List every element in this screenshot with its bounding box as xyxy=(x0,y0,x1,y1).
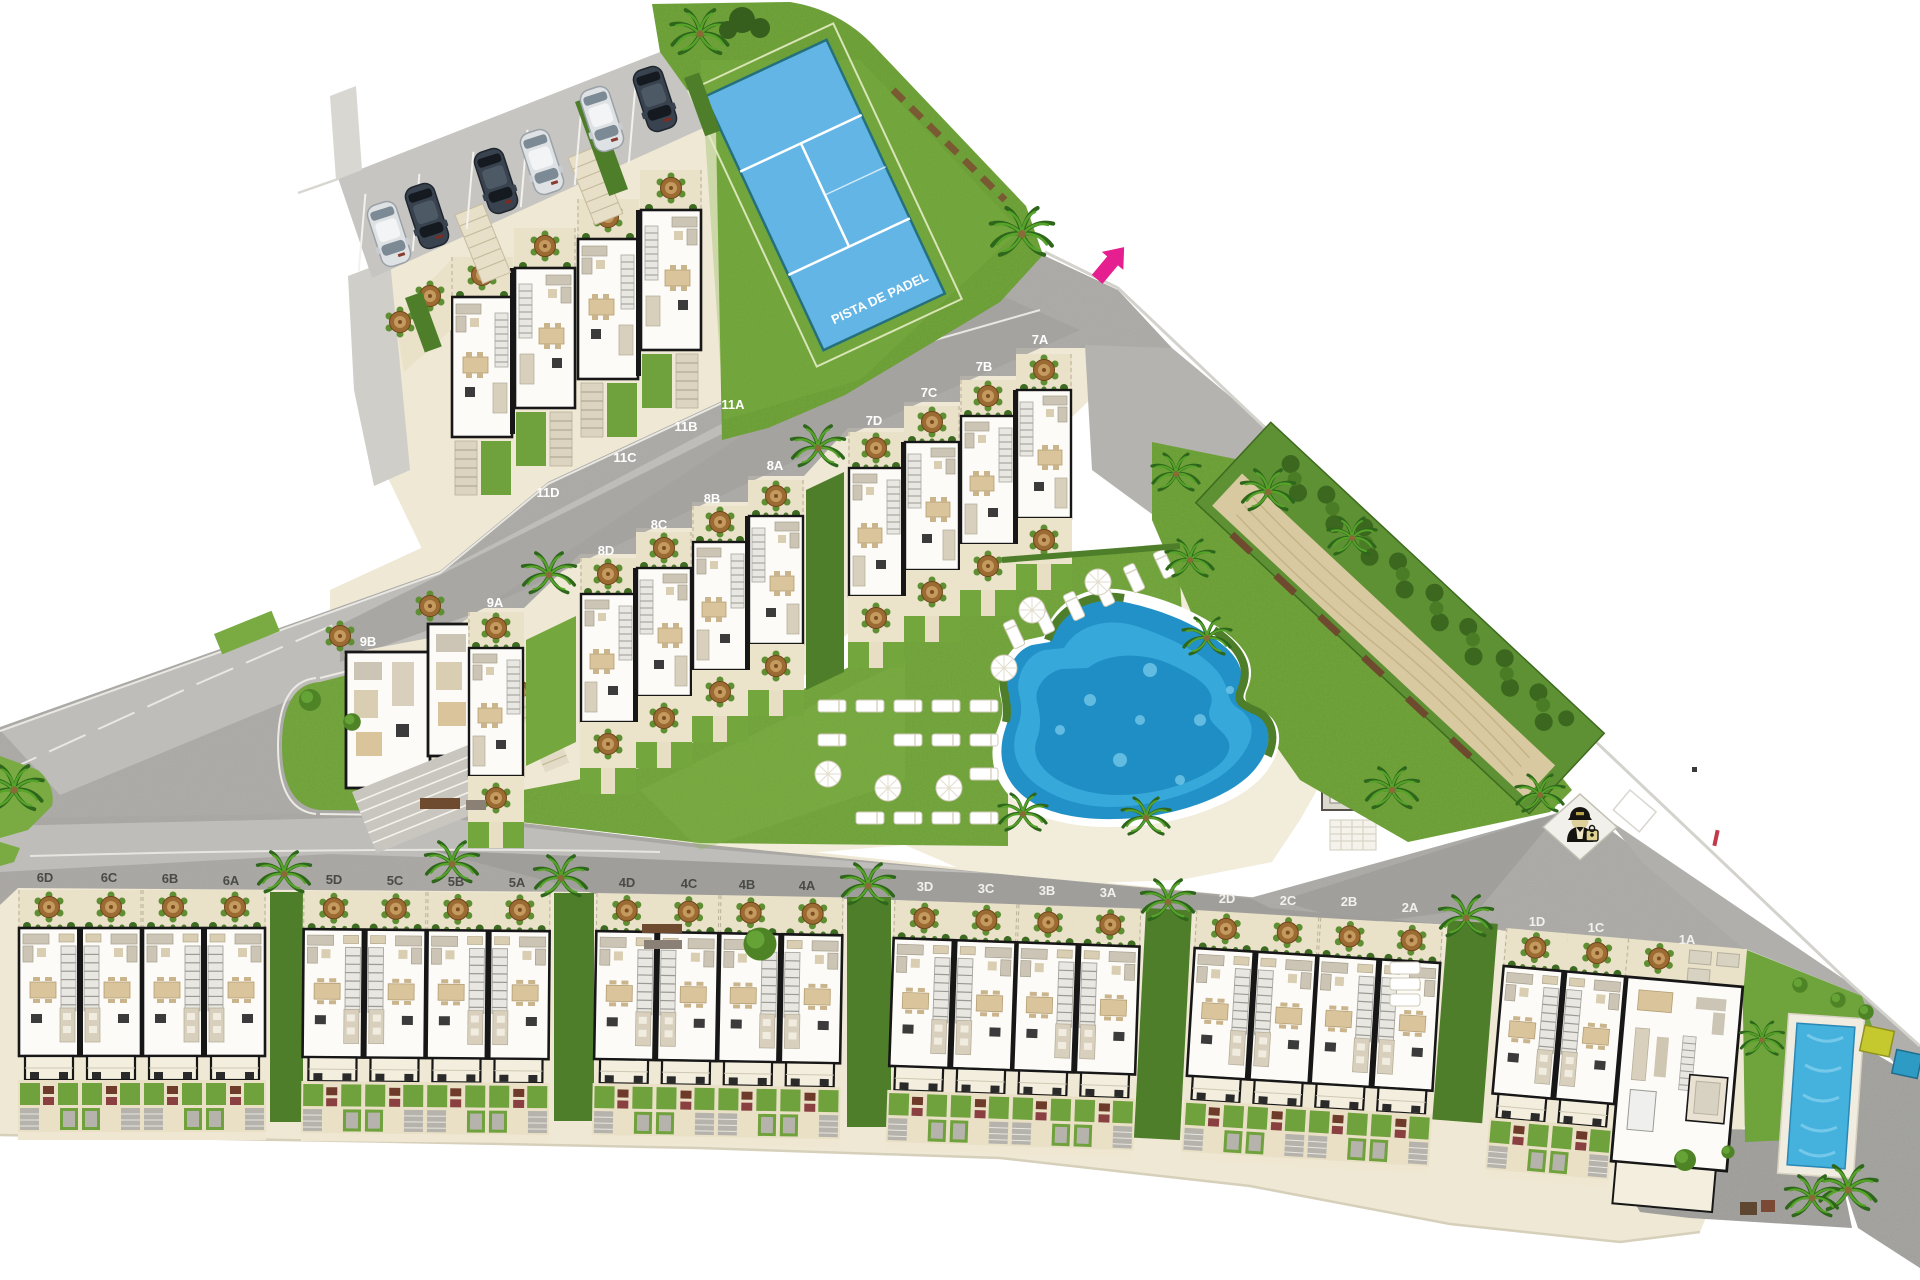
svg-text:6C: 6C xyxy=(101,870,118,885)
svg-text:6D: 6D xyxy=(37,870,54,885)
svg-text:2A: 2A xyxy=(1402,900,1419,915)
svg-text:11D: 11D xyxy=(536,485,559,500)
svg-text:2D: 2D xyxy=(1219,891,1236,906)
svg-text:8B: 8B xyxy=(704,491,721,506)
svg-text:7C: 7C xyxy=(921,385,938,400)
svg-text:1C: 1C xyxy=(1588,920,1605,935)
svg-text:5A: 5A xyxy=(509,875,526,890)
svg-text:8D: 8D xyxy=(598,543,615,558)
svg-text:7A: 7A xyxy=(1032,332,1049,347)
svg-text:1A: 1A xyxy=(1679,932,1696,947)
svg-text:4B: 4B xyxy=(739,877,756,892)
svg-text:11A: 11A xyxy=(721,397,745,412)
svg-text:6A: 6A xyxy=(223,873,240,888)
svg-text:11B: 11B xyxy=(674,419,697,434)
svg-text:7D: 7D xyxy=(866,413,883,428)
svg-text:3B: 3B xyxy=(1039,883,1056,898)
svg-text:9B: 9B xyxy=(360,634,377,649)
svg-text:3A: 3A xyxy=(1100,885,1117,900)
svg-text:3D: 3D xyxy=(917,879,934,894)
svg-text:3C: 3C xyxy=(978,881,995,896)
svg-text:7B: 7B xyxy=(976,359,993,374)
svg-text:5B: 5B xyxy=(448,874,465,889)
svg-text:4A: 4A xyxy=(799,878,816,893)
svg-text:9A: 9A xyxy=(487,595,504,610)
svg-text:6B: 6B xyxy=(162,871,179,886)
svg-text:5D: 5D xyxy=(326,872,343,887)
svg-text:8C: 8C xyxy=(651,517,668,532)
svg-text:11C: 11C xyxy=(613,450,637,465)
svg-text:2B: 2B xyxy=(1341,894,1358,909)
svg-text:4C: 4C xyxy=(681,876,698,891)
svg-text:2C: 2C xyxy=(1280,893,1297,908)
svg-text:1D: 1D xyxy=(1529,914,1546,929)
svg-text:8A: 8A xyxy=(767,458,784,473)
svg-text:4D: 4D xyxy=(619,875,636,890)
svg-text:5C: 5C xyxy=(387,873,404,888)
